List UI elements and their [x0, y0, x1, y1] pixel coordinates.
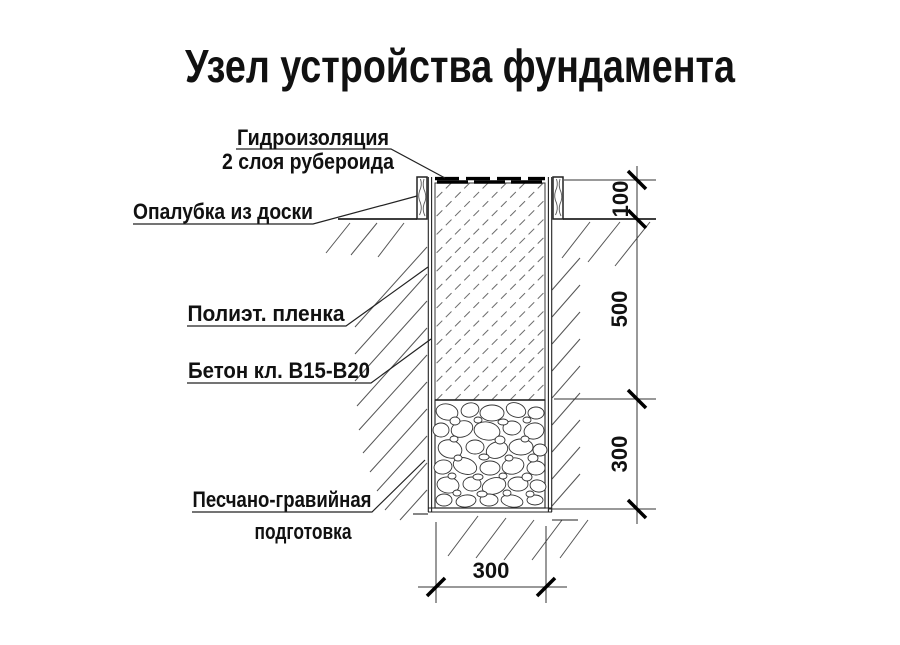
label-formwork: Опалубка из доски [133, 199, 313, 224]
dim-300-vertical: 300 [607, 436, 632, 473]
dim-500: 500 [607, 291, 632, 328]
gravel-stones [433, 400, 547, 509]
label-film: Полиэт. пленка [188, 301, 346, 326]
foundation-diagram: Узел устройства фундамента [0, 0, 900, 645]
page-title: Узел устройства фундамента [185, 40, 735, 92]
label-waterproofing-line1: Гидроизоляция [237, 125, 389, 150]
dim-300-width: 300 [473, 558, 510, 583]
label-gravel-line1: Песчано-гравийная [193, 487, 372, 512]
gravel-layer [433, 400, 547, 509]
formwork-board-right [553, 177, 563, 219]
drawing-page: Узел устройства фундамента [0, 0, 900, 645]
dim-100: 100 [608, 181, 633, 218]
label-concrete: Бетон кл. В15-В20 [188, 358, 370, 383]
concrete-body [435, 183, 545, 400]
formwork-board-left [417, 177, 427, 219]
label-waterproofing-line2: 2 слоя рубероида [222, 149, 395, 174]
label-gravel-line2: подготовка [255, 519, 353, 544]
waterproofing-layers [435, 179, 545, 182]
dimension-width-bottom: 300 [418, 522, 567, 603]
